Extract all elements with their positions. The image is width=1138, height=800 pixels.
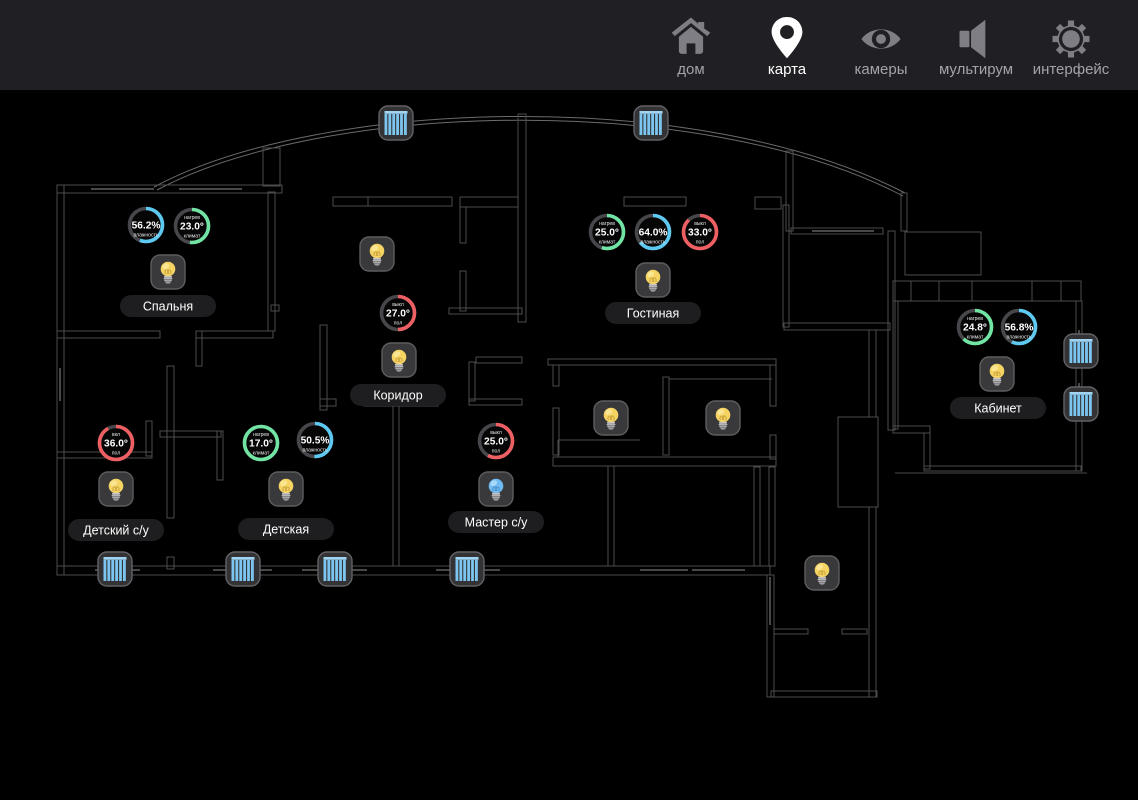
svg-text:пол: пол	[696, 240, 704, 246]
svg-text:нагрев: нагрев	[599, 221, 615, 227]
svg-text:25.0°: 25.0°	[595, 228, 619, 239]
svg-text:50.5%: 50.5%	[301, 436, 330, 447]
svg-text:вкл: вкл	[112, 432, 120, 438]
svg-text:пол: пол	[112, 451, 120, 457]
svg-text:климат: климат	[599, 240, 616, 246]
svg-text:27.0°: 27.0°	[386, 309, 410, 320]
svg-text:выкл: выкл	[392, 302, 404, 308]
svg-text:камеры: камеры	[854, 61, 907, 78]
svg-text:пол: пол	[394, 321, 402, 327]
svg-text:мультирум: мультирум	[939, 61, 1013, 78]
svg-text:нагрев: нагрев	[253, 432, 269, 438]
svg-text:влажность: влажность	[303, 448, 328, 454]
svg-text:33.0°: 33.0°	[688, 228, 712, 239]
svg-text:влажность: влажность	[1007, 335, 1032, 341]
svg-text:выкл: выкл	[694, 221, 706, 227]
svg-text:интерфейс: интерфейс	[1033, 61, 1110, 78]
svg-text:64.0%: 64.0%	[639, 228, 668, 239]
svg-text:Коридор: Коридор	[373, 388, 422, 402]
svg-text:Гостиная: Гостиная	[627, 306, 679, 320]
svg-text:влажность: влажность	[641, 240, 666, 246]
svg-text:23.0°: 23.0°	[180, 222, 204, 233]
svg-text:17.0°: 17.0°	[249, 439, 273, 450]
svg-text:56.8%: 56.8%	[1005, 323, 1034, 334]
svg-text:климат: климат	[967, 335, 984, 341]
svg-text:климат: климат	[253, 451, 270, 457]
svg-text:нагрев: нагрев	[184, 215, 200, 221]
svg-text:карта: карта	[768, 61, 807, 78]
svg-text:24.8°: 24.8°	[963, 323, 987, 334]
svg-text:дом: дом	[677, 61, 704, 78]
svg-text:Детский с/у: Детский с/у	[83, 523, 149, 537]
svg-text:56.2%: 56.2%	[132, 221, 161, 232]
svg-text:Спальня: Спальня	[143, 299, 193, 313]
svg-text:25.0°: 25.0°	[484, 437, 508, 448]
svg-text:климат: климат	[184, 234, 201, 240]
svg-text:выкл: выкл	[490, 430, 502, 436]
svg-text:нагрев: нагрев	[967, 316, 983, 322]
svg-text:Детская: Детская	[263, 522, 309, 536]
svg-text:пол: пол	[492, 449, 500, 455]
svg-text:36.0°: 36.0°	[104, 439, 128, 450]
svg-text:Кабинет: Кабинет	[974, 401, 1022, 415]
svg-text:Мастер с/у: Мастер с/у	[465, 515, 528, 529]
svg-text:влажность: влажность	[134, 233, 159, 239]
